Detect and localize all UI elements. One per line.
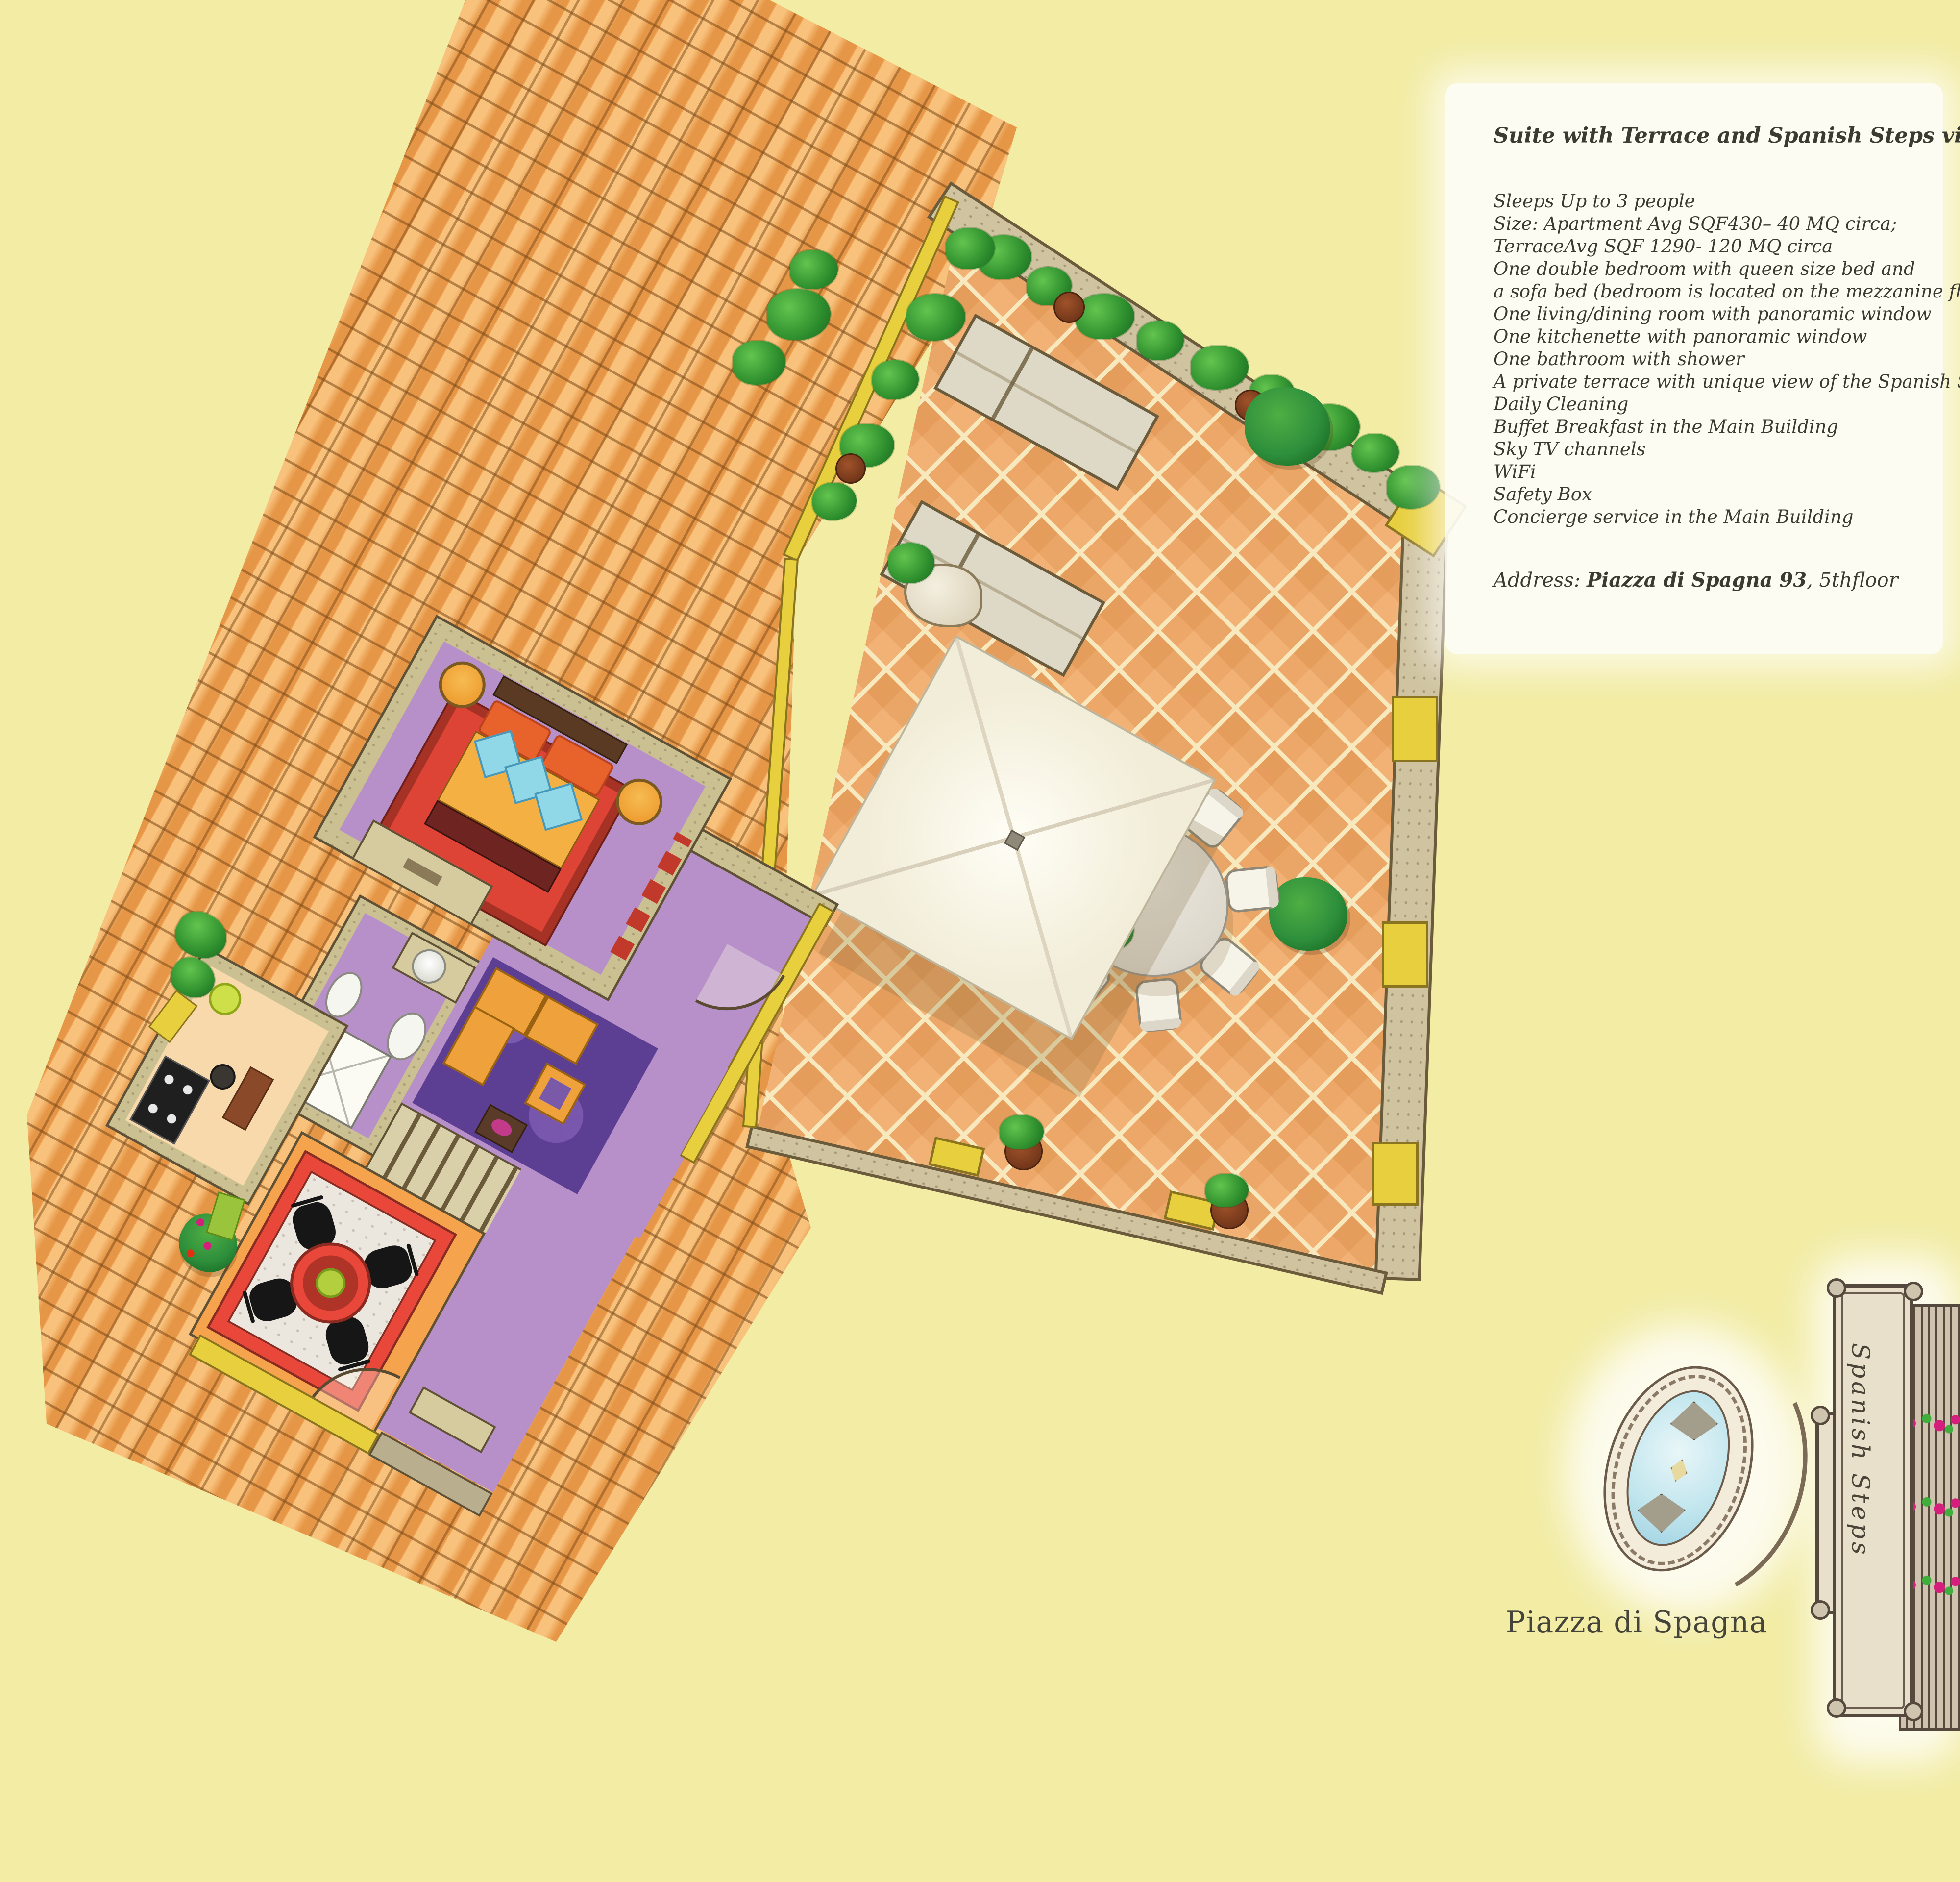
info-line: One double bedroom with queen size bed a… <box>1494 258 1960 280</box>
info-line: TerraceAvg SQF 1290- 120 MQ circa <box>1494 235 1960 258</box>
terrace-right-pilaster-2 <box>1382 921 1428 988</box>
info-lines: Sleeps Up to 3 people Size: Apartment Av… <box>1494 190 1960 528</box>
info-line: A private terrace with unique view of th… <box>1494 371 1960 393</box>
info-line: Buffet Breakfast in the Main Building <box>1494 416 1960 438</box>
info-line: Sleeps Up to 3 people <box>1494 190 1960 213</box>
steps-knob <box>1827 1698 1846 1718</box>
info-line: Concierge service in the Main Building <box>1494 506 1960 528</box>
flower-pot <box>835 453 866 484</box>
piazza-label: Piazza di Spagna <box>1499 1605 1774 1639</box>
info-line: Sky TV channels <box>1494 438 1960 461</box>
info-line: a sofa bed (bedroom is located on the me… <box>1494 280 1960 303</box>
fountain-boat-stern <box>1638 1494 1686 1533</box>
info-address: Address: Piazza di Spagna 93, 5thfloor <box>1494 569 1898 592</box>
info-line: WiFi <box>1494 461 1960 483</box>
gazebo-center-knob <box>1004 830 1026 851</box>
info-line: Daily Cleaning <box>1494 393 1960 416</box>
spanish-steps-illustration: Spanish Steps <box>1808 1255 1960 1774</box>
planter-leaf-box <box>206 1191 245 1241</box>
info-box: Suite with Terrace and Spanish Steps vie… <box>1445 83 1943 654</box>
flower-pot <box>1053 292 1085 323</box>
fountain-boat-bow <box>1670 1401 1718 1440</box>
terrace-right-pilaster-1 <box>1392 696 1438 762</box>
info-line: One kitchenette with panoramic window <box>1494 325 1960 348</box>
terrace-chair <box>1224 865 1280 914</box>
steps-knob <box>1904 1702 1923 1721</box>
terrace-bush-2 <box>1269 877 1347 951</box>
floorplan-illustration: Suite with Terrace and Spanish Steps vie… <box>0 0 1960 1882</box>
ivy-plant <box>812 483 857 520</box>
terrace-chair <box>1134 977 1183 1033</box>
ivy-plant <box>1352 434 1399 472</box>
fountain-center <box>1667 1457 1691 1485</box>
info-title: Suite with Terrace and Spanish Steps vie… <box>1494 124 1960 148</box>
steps-label: Spanish Steps <box>1846 1343 1875 1558</box>
address-value: Piazza di Spagna 93 <box>1587 569 1807 592</box>
address-label: Address: <box>1494 569 1587 592</box>
info-line: One living/dining room with panoramic wi… <box>1494 303 1960 325</box>
ivy-plant <box>872 360 919 399</box>
terrace-bush-1 <box>1245 387 1330 466</box>
steps-knob <box>1811 1406 1830 1425</box>
steps-knob <box>1811 1600 1830 1620</box>
steps-knob <box>1827 1278 1846 1298</box>
steps-knob <box>1904 1282 1923 1301</box>
terrace-right-pilaster-3 <box>1372 1142 1419 1206</box>
info-line: Safety Box <box>1494 483 1960 506</box>
info-line: One bathroom with shower <box>1494 348 1960 371</box>
address-suffix: , 5thfloor <box>1807 569 1898 592</box>
info-line: Size: Apartment Avg SQF430– 40 MQ circa; <box>1494 213 1960 235</box>
